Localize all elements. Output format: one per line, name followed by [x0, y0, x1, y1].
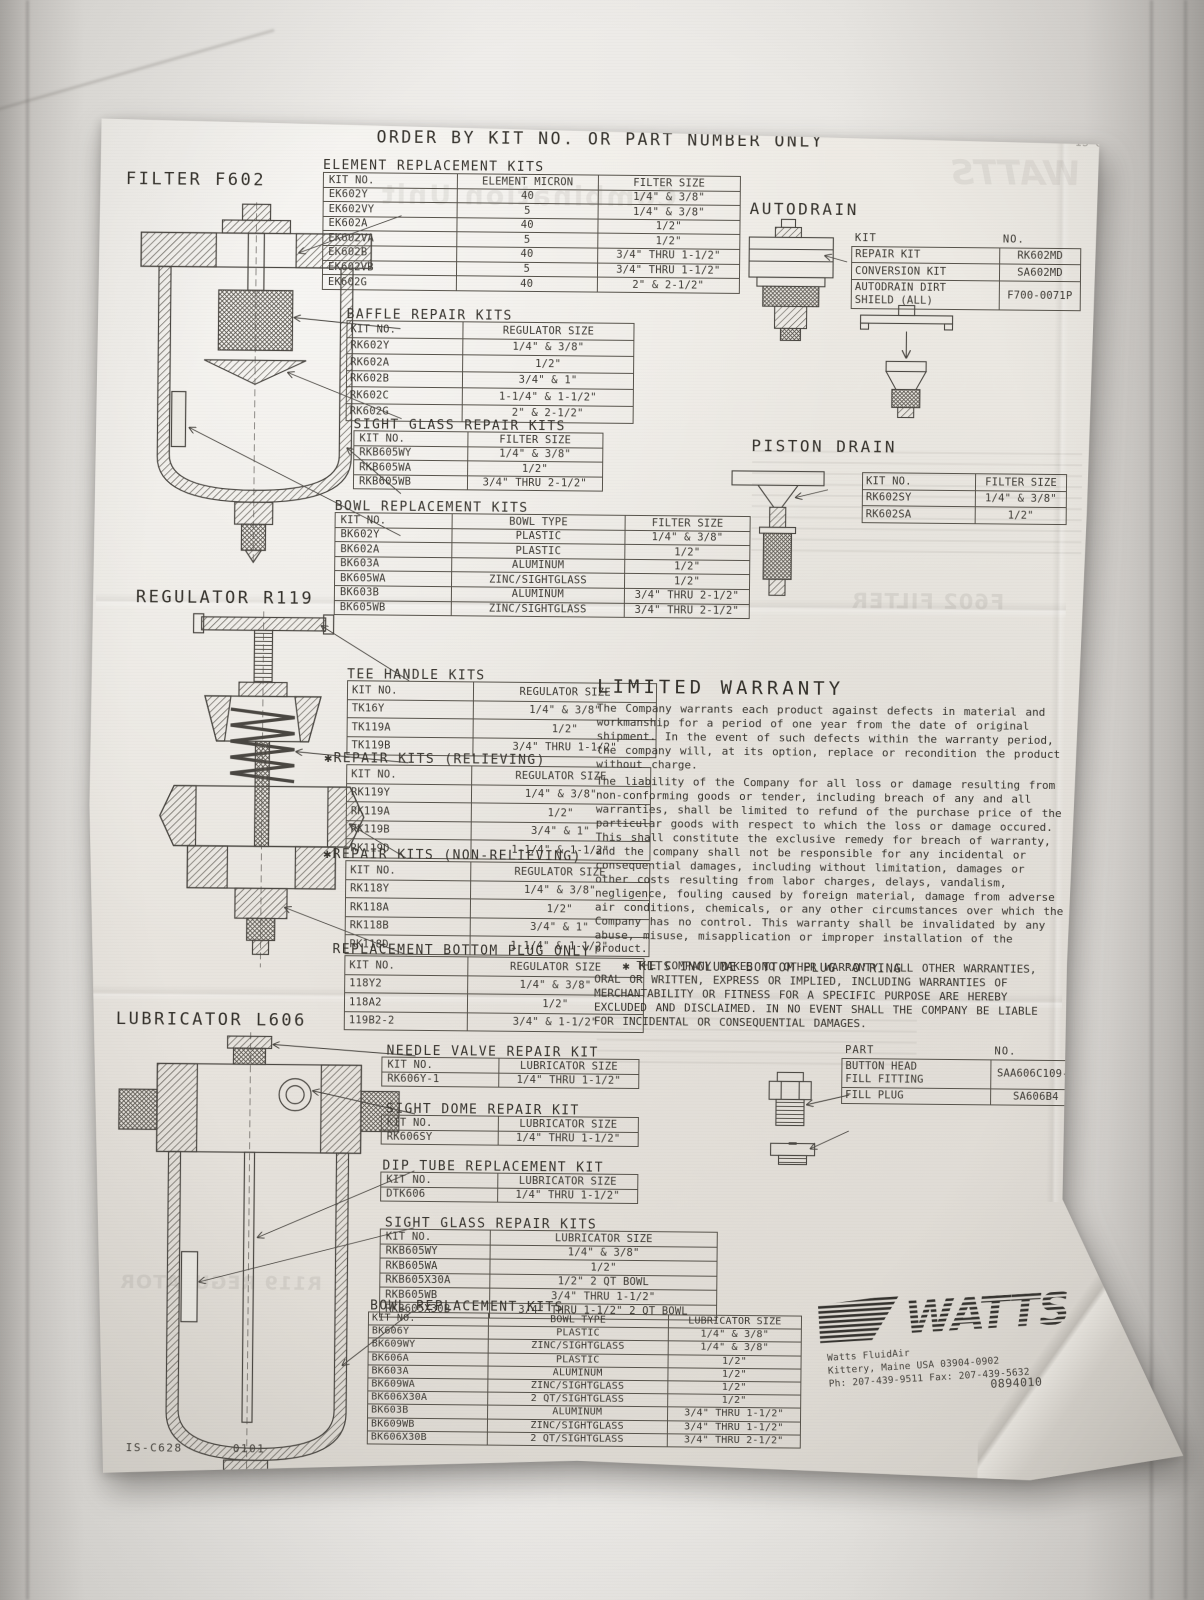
piston-drain-diagram — [729, 463, 830, 614]
table-cell: 1/2" — [597, 219, 740, 235]
table-cell: FILTER SIZE — [976, 474, 1067, 491]
table-cell: 40 — [456, 276, 597, 292]
table-cell: RK118A — [345, 898, 470, 918]
table-cell: PART — [842, 1042, 992, 1060]
table-cell: 3/4" THRU 1-1/2" — [667, 1407, 800, 1421]
table-cell: 3/4" THRU 1-1/2" — [667, 1420, 800, 1434]
table-cell: KIT NO. — [380, 1229, 490, 1245]
table-cell: BK603A — [368, 1365, 488, 1379]
table-cell: 1/2" — [667, 1394, 800, 1408]
table-cell: BUTTON HEAD FILL FITTING — [842, 1058, 992, 1089]
table-cell: CONVERSION KIT — [851, 263, 999, 281]
table-cell: 1/4" THRU 1-1/2" — [499, 1073, 639, 1089]
table-cell: BOWL TYPE — [452, 514, 625, 530]
table-cell: SA606B4 — [991, 1089, 1081, 1106]
table-cell: TK16Y — [347, 699, 474, 719]
table-cell: ZINC/SIGHTGLASS — [451, 572, 624, 588]
table-cell: LUBRICATOR SIZE — [668, 1315, 801, 1329]
table-cell: ELEMENT MICRON — [457, 174, 598, 190]
table-cell: 1/4" & 3/8" — [467, 446, 603, 462]
lubricator-cross-section-diagram — [95, 1031, 422, 1546]
sight-dome-kit-table: KIT NO.LUBRICATOR SIZERK606SY1/4" THRU 1… — [381, 1115, 639, 1148]
table-cell: 40 — [457, 218, 598, 234]
table-cell: RK118Y — [346, 879, 471, 899]
table-cell: RK606Y-1 — [382, 1072, 499, 1088]
table-cell: RK602A — [347, 354, 463, 372]
form-number: IS-C628 — [126, 1441, 183, 1455]
table-cell: BK602A — [335, 542, 452, 558]
table-cell: RK119Y — [346, 783, 471, 803]
table-cell: BK606X30B — [367, 1431, 487, 1445]
table-cell: REGULATOR SIZE — [463, 322, 634, 340]
piston-drain-kit-table: KIT NO.FILTER SIZERK602SY1/4" & 3/8"RK60… — [862, 472, 1067, 525]
bleedthrough-watts-logo: WATTS — [950, 153, 1081, 194]
fill-parts-table: PARTNO.BUTTON HEAD FILL FITTINGSAA606C10… — [841, 1042, 1082, 1107]
table-cell: KIT NO. — [354, 431, 468, 447]
filter-bowl-kits-table: KIT NO.BOWL TYPEFILTER SIZEBK602YPLASTIC… — [334, 512, 751, 619]
table-cell: KIT NO. — [368, 1312, 488, 1326]
table-cell: KIT NO. — [381, 1172, 498, 1188]
table-cell: 1/2" — [467, 461, 603, 477]
table-cell: RK602MD — [1000, 248, 1081, 265]
table-cell: REPAIR KIT — [852, 246, 1000, 264]
table-cell: 119B2-2 — [344, 1011, 467, 1031]
table-cell: 5 — [457, 232, 598, 248]
table-cell: BK609WA — [368, 1378, 488, 1392]
bleedthrough-f602: F602 FILTER — [851, 589, 1005, 614]
table-cell: 1-1/4" & 1-1/2" — [462, 388, 633, 406]
table-cell: BK603B — [368, 1404, 488, 1418]
table-cell: RK118B — [345, 916, 470, 936]
table-cell: RK602B — [346, 370, 462, 388]
paper-wrapper: Combination Unit WATTS IS-C628 F602 FILT… — [77, 105, 1200, 1488]
table-cell: BK605WA — [335, 571, 452, 587]
table-cell: RKB605WA — [380, 1258, 490, 1274]
table-cell: RK119A — [346, 802, 471, 822]
table-cell: RK606SY — [381, 1130, 498, 1146]
table-cell: 2" & 2-1/2" — [597, 277, 740, 293]
autodrain-dirt-shield-diagram — [858, 297, 959, 430]
table-cell: 3/4" THRU 2-1/2" — [667, 1433, 800, 1447]
table-cell: ALUMINUM — [451, 587, 624, 603]
table-cell: LUBRICATOR SIZE — [499, 1058, 639, 1074]
lubricator-section-label: LUBRICATOR L606 — [116, 1009, 307, 1031]
table-cell: BK606Y — [368, 1325, 488, 1339]
page-title: ORDER BY KIT NO. OR PART NUMBER ONLY — [330, 127, 870, 151]
table-cell: 1/4" THRU 1-1/2" — [498, 1131, 638, 1147]
kits-note: ✱ KITS INCLUDE BOTTOM PLUG 'O'RING — [622, 959, 902, 976]
table-cell: FILTER SIZE — [598, 175, 741, 191]
table-cell: 1/4" & 3/8" — [668, 1328, 801, 1342]
table-cell: BK609WY — [368, 1338, 488, 1352]
table-cell: RK602SY — [862, 489, 975, 507]
table-cell: BK609WB — [367, 1417, 487, 1431]
table-cell: BK606X30A — [368, 1391, 488, 1405]
table-cell: BK603B — [334, 586, 451, 602]
wall-groove-left — [26, 0, 29, 1600]
table-cell: RKB605WB — [353, 475, 467, 491]
warranty-paragraph-1: The Company warrants each product agains… — [596, 702, 1067, 776]
table-cell: PLASTIC — [452, 528, 625, 544]
table-cell: KIT NO. — [382, 1057, 499, 1073]
table-cell: 1/4" THRU 1-1/2" — [498, 1188, 638, 1204]
table-cell: KIT NO. — [347, 681, 474, 701]
table-cell: RKB605X30A — [380, 1273, 490, 1289]
table-cell: 3/4" THRU 2-1/2" — [467, 476, 603, 492]
table-cell: RK602C — [346, 387, 462, 405]
table-cell: KIT — [852, 230, 1000, 248]
table-cell: KIT NO. — [862, 473, 975, 491]
table-cell: RK602Y — [347, 337, 463, 355]
table-cell: 1/2" — [463, 355, 634, 373]
piston-drain-section-label: PISTON DRAIN — [751, 436, 897, 456]
baffle-repair-kits-table: KIT NO.REGULATOR SIZERK602Y1/4" & 3/8"RK… — [346, 320, 635, 423]
table-cell: BK602Y — [335, 527, 452, 543]
table-cell: 1/4" & 3/8" — [598, 204, 741, 220]
table-cell: SA602MD — [999, 264, 1080, 281]
table-cell: BK603A — [335, 556, 452, 572]
lubricator-bowl-kits-table: KIT NO.BOWL TYPELUBRICATOR SIZEBK606YPLA… — [367, 1311, 802, 1448]
autodrain-diagram — [736, 217, 849, 350]
table-cell: 1/4" & 3/8" — [463, 338, 634, 356]
table-cell: 1/4" & 3/8" — [975, 490, 1066, 507]
table-cell: 5 — [457, 261, 598, 277]
table-cell: 5 — [457, 203, 598, 219]
table-cell: 3/4" & 1" — [462, 372, 633, 390]
table-cell: 118A2 — [344, 993, 467, 1013]
table-cell: KIT NO. — [323, 172, 457, 188]
form-footer: IS-C628 0101 — [126, 1441, 266, 1455]
table-cell: FILTER SIZE — [467, 432, 603, 448]
table-cell: 1/4" & 3/8" — [598, 190, 741, 206]
table-cell: 2 QT/SIGHTGLASS — [487, 1432, 667, 1447]
table-cell: RK602SA — [862, 506, 975, 524]
table-cell: RK119B — [346, 820, 471, 840]
table-cell: KIT NO. — [381, 1115, 498, 1131]
table-cell: NO. — [991, 1043, 1081, 1060]
table-cell: RKB605WY — [354, 445, 468, 461]
table-cell: 3/4" THRU 1-1/2" — [597, 248, 740, 264]
table-cell: KIT NO. — [347, 765, 472, 785]
regulator-section-label: REGULATOR R119 — [136, 587, 314, 609]
table-cell: SAA606C109-1 — [991, 1059, 1081, 1089]
warranty-heading: LIMITED WARRANTY — [597, 676, 844, 700]
table-cell: RKB605WY — [380, 1244, 490, 1260]
warranty-text: The Company warrants each product agains… — [594, 702, 1067, 1037]
paper: Combination Unit WATTS IS-C628 F602 FILT… — [77, 105, 1200, 1488]
filter-sight-glass-kits-table: KIT NO.FILTER SIZERKB605WY1/4" & 3/8"RKB… — [353, 430, 604, 492]
warranty-paragraph-2: The liability of the Company for all los… — [594, 774, 1066, 960]
doc-number: 0894010 — [990, 1375, 1043, 1391]
table-cell: 1/2" — [668, 1354, 801, 1368]
table-cell: 1/2" — [668, 1381, 801, 1395]
watts-logo-text: WATTS — [903, 1283, 1070, 1344]
table-cell: F700-0071P — [999, 281, 1080, 311]
table-cell: 1/2" — [668, 1368, 801, 1382]
bleedthrough-corner-code: IS-C628 — [1075, 136, 1122, 150]
form-revision: 0101 — [233, 1442, 266, 1455]
table-cell: 40 — [457, 247, 598, 263]
table-cell: ALUMINUM — [452, 557, 625, 573]
table-cell: LUBRICATOR SIZE — [498, 1173, 638, 1189]
table-cell: 1/4" & 3/8" — [668, 1341, 801, 1355]
table-cell: KIT NO. — [347, 321, 463, 339]
table-cell: 3/4" THRU 1-1/2" — [597, 263, 740, 279]
table-cell: FILL PLUG — [842, 1087, 992, 1105]
table-cell: RKB605WA — [354, 460, 468, 476]
table-cell: EK602Y — [323, 187, 457, 203]
table-cell: 40 — [457, 188, 598, 204]
table-cell: 1/2" — [975, 507, 1066, 524]
table-cell: ZINC/SIGHTGLASS — [451, 601, 624, 617]
table-cell: PLASTIC — [452, 543, 625, 559]
autodrain-section-label: AUTODRAIN — [750, 199, 859, 219]
table-cell: KIT NO. — [335, 513, 452, 529]
dip-tube-kit-table: KIT NO.LUBRICATOR SIZEDTK6061/4" THRU 1-… — [380, 1172, 638, 1205]
table-cell: 118Y2 — [345, 974, 468, 994]
table-cell: DTK606 — [381, 1187, 498, 1203]
table-cell: NO. — [1000, 231, 1081, 248]
needle-valve-kit-table: KIT NO.LUBRICATOR SIZERK606Y-11/4" THRU … — [381, 1057, 639, 1090]
table-cell: BK606A — [368, 1351, 488, 1365]
filter-section-label: FILTER F602 — [126, 169, 266, 190]
watts-logo-block: WATTS Watts FluidAir Kittery, Maine USA … — [811, 1271, 1156, 1392]
photo-of-instruction-sheet: { "header": { "order_title": "ORDER BY K… — [0, 0, 1204, 1600]
table-cell: TK119A — [347, 718, 474, 738]
table-cell: KIT NO. — [345, 956, 468, 976]
table-cell: 1/2" — [597, 233, 740, 249]
wall-panel-edge — [0, 29, 275, 115]
table-cell: LUBRICATOR SIZE — [498, 1116, 638, 1132]
table-cell: KIT NO. — [346, 861, 471, 881]
